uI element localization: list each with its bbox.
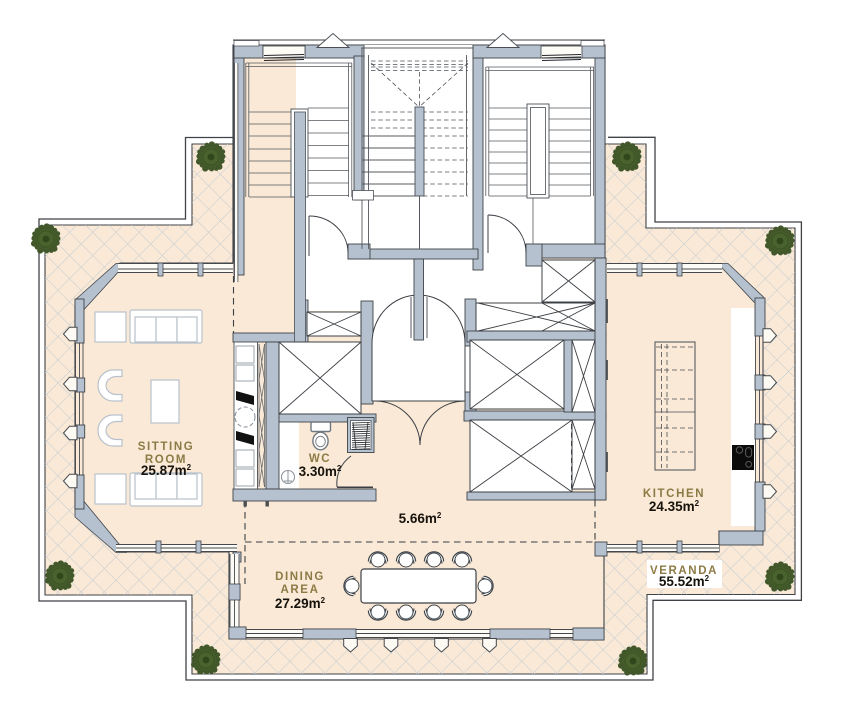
svg-text:55.52m2: 55.52m2 xyxy=(659,574,710,589)
svg-text:25.87m2: 25.87m2 xyxy=(141,463,192,478)
svg-text:AREA: AREA xyxy=(281,584,320,596)
svg-text:DINING: DINING xyxy=(275,571,325,583)
svg-text:3.30m2: 3.30m2 xyxy=(299,464,342,479)
svg-text:27.29m2: 27.29m2 xyxy=(275,596,326,611)
svg-text:5.66m2: 5.66m2 xyxy=(399,511,442,526)
svg-text:24.35m2: 24.35m2 xyxy=(649,499,700,514)
svg-text:SITTING: SITTING xyxy=(138,441,195,453)
